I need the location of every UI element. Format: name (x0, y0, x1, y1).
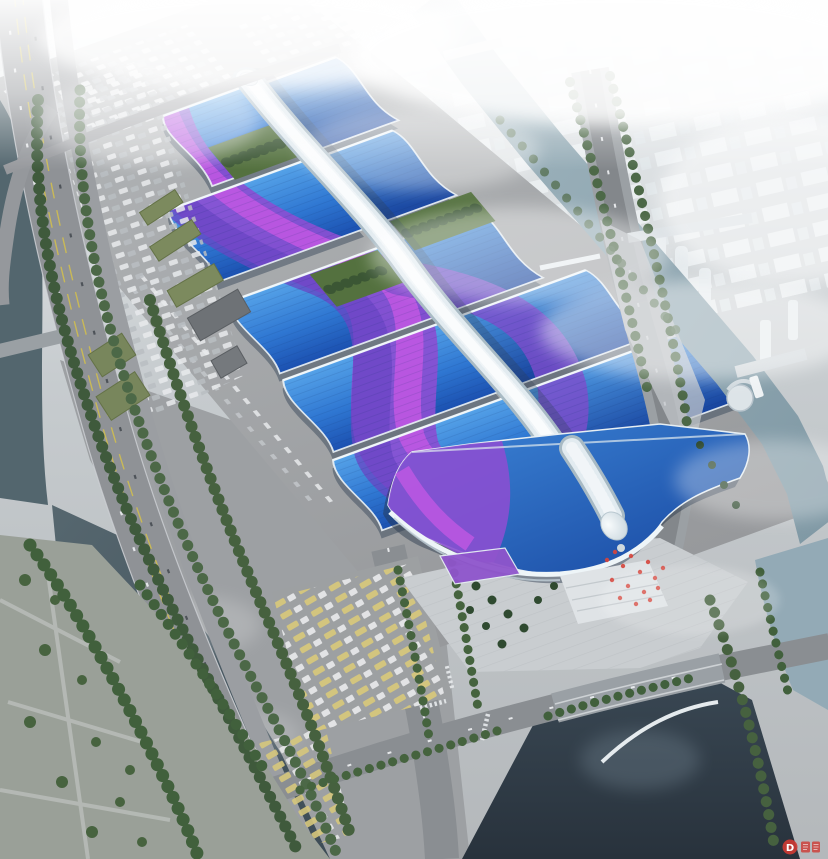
scene-canvas: D (0, 0, 828, 859)
aerial-rendering: D (0, 0, 828, 859)
watermark-letter: D (786, 843, 794, 854)
